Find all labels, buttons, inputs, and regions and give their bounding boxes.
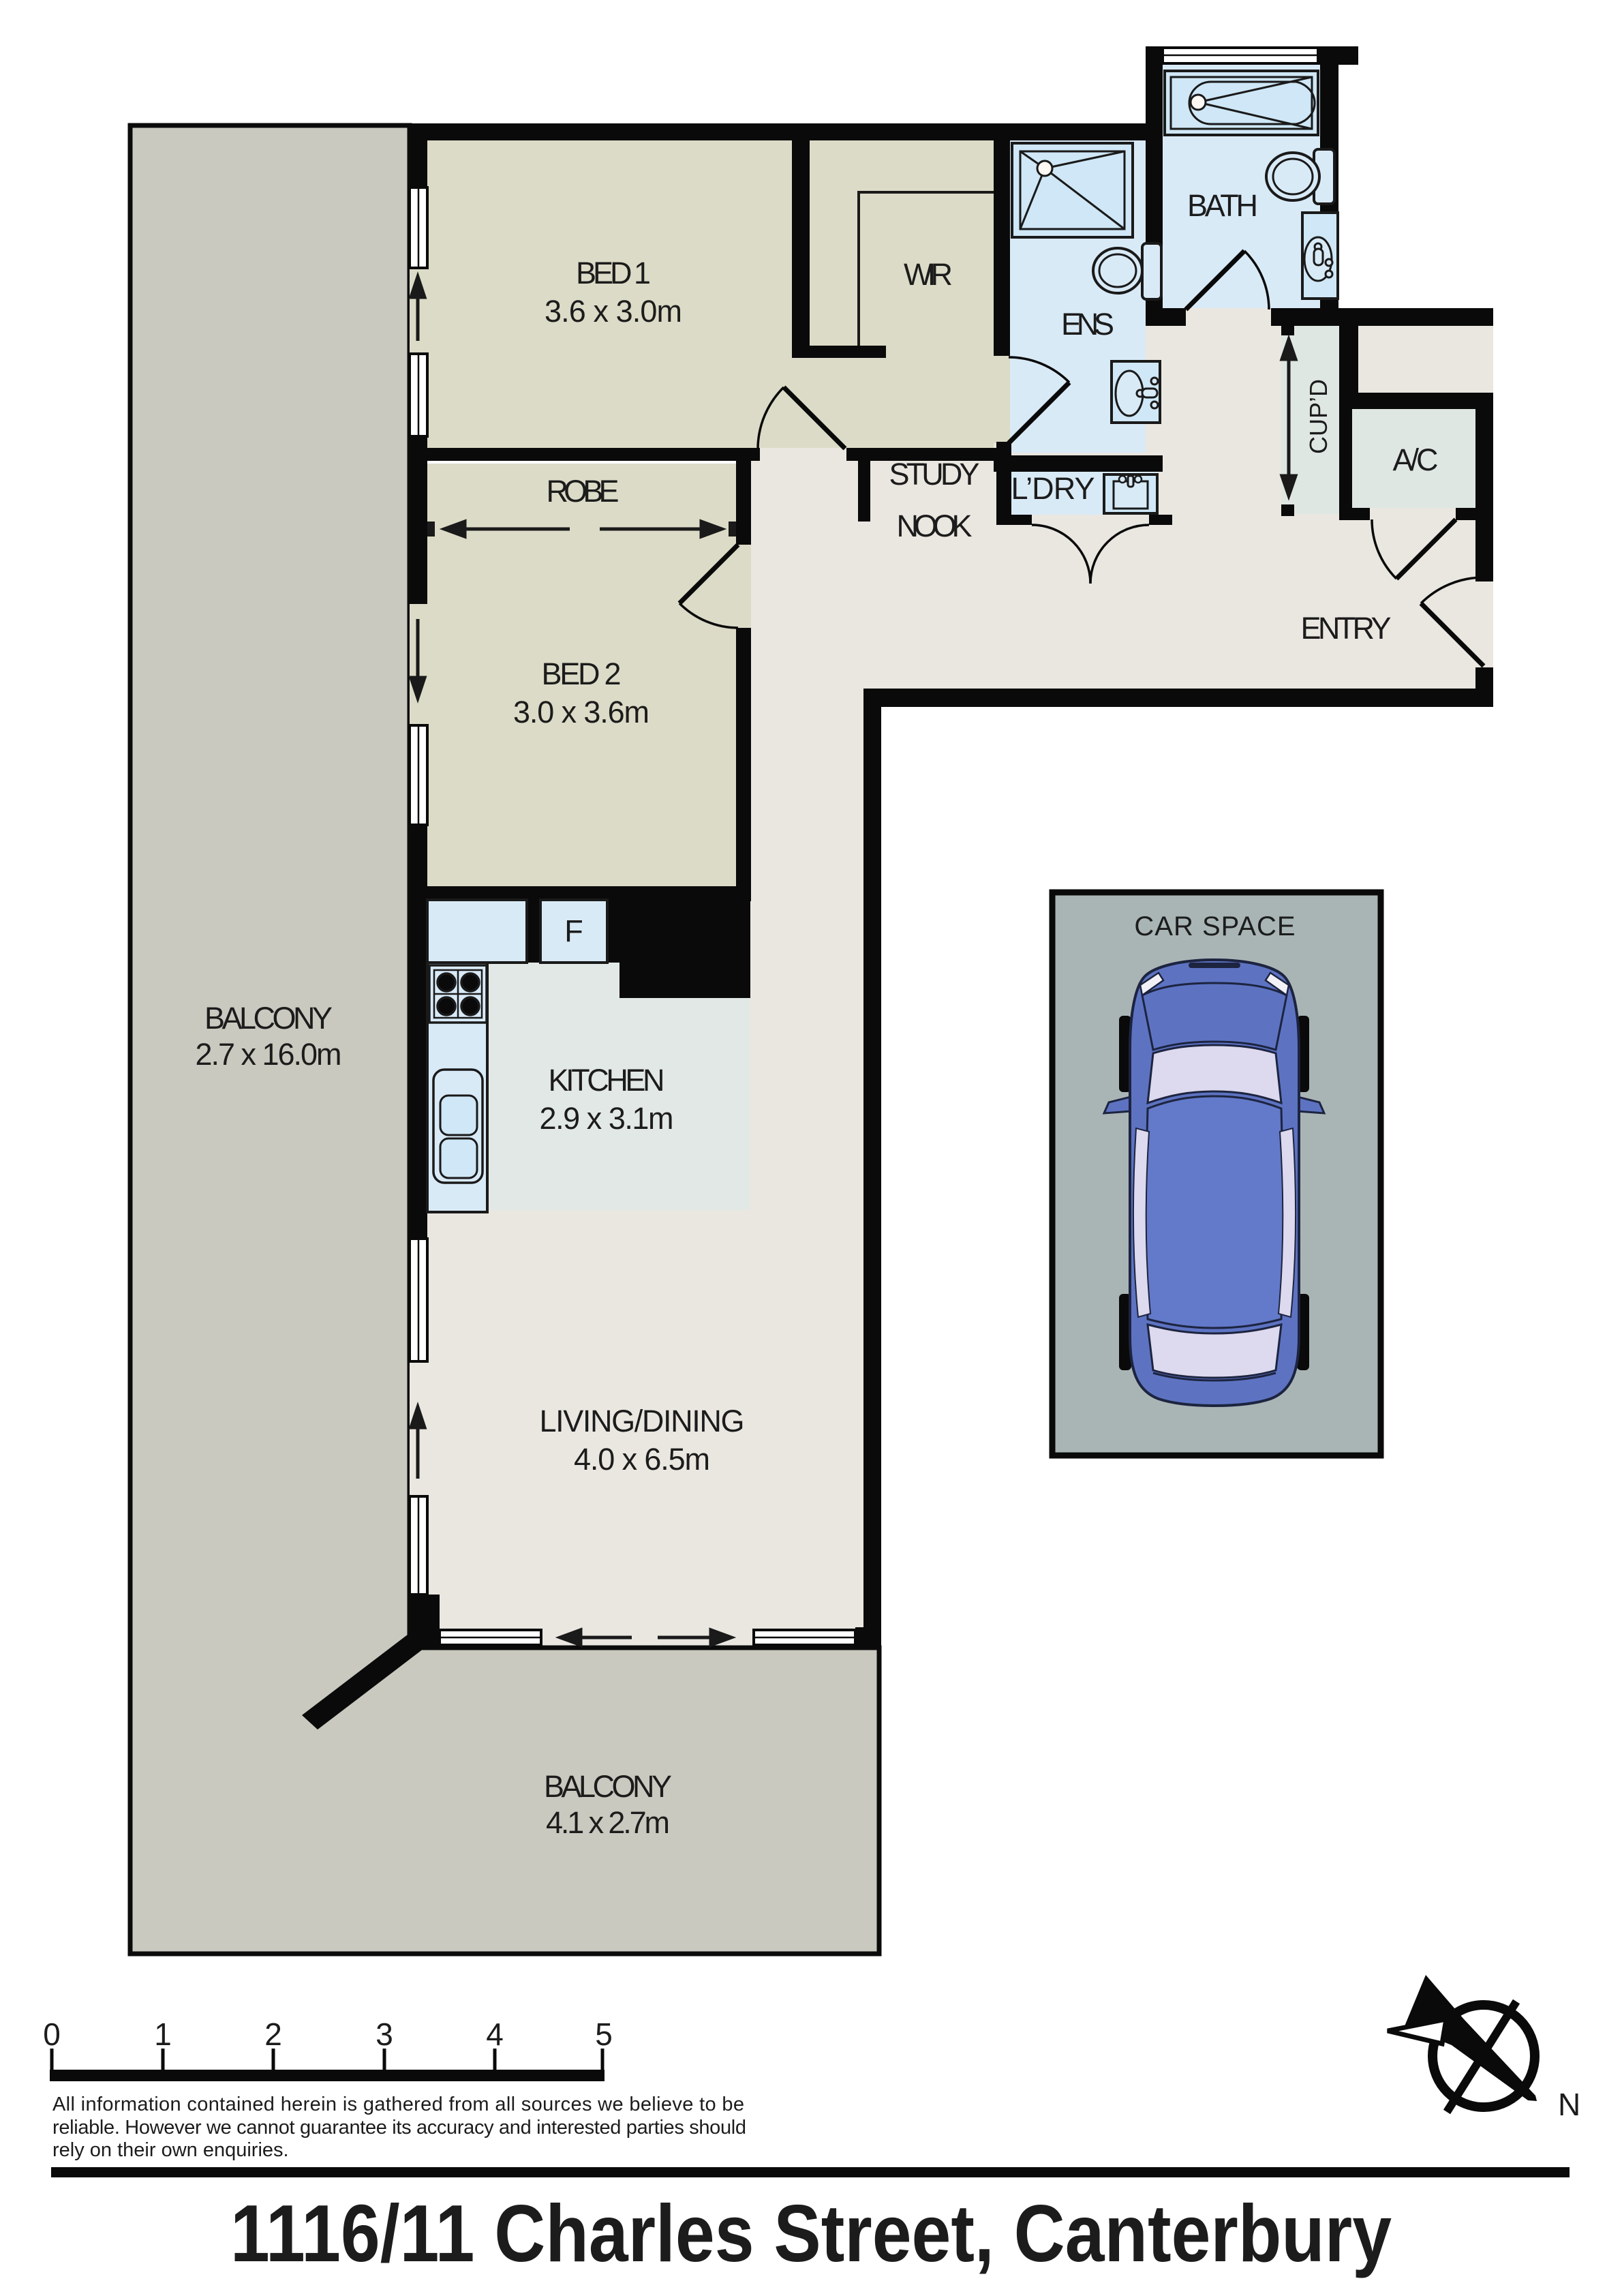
svg-text:5: 5 [595, 2016, 613, 2052]
svg-text:3: 3 [376, 2016, 393, 2052]
svg-text:ENS: ENS [1061, 307, 1114, 342]
svg-text:STUDY: STUDY [889, 457, 980, 492]
svg-text:BALCONY: BALCONY [544, 1769, 672, 1804]
svg-text:LIVING/DINING: LIVING/DINING [540, 1404, 745, 1438]
svg-text:All information contained here: All information contained herein is gath… [52, 2094, 744, 2115]
svg-text:ROBE: ROBE [547, 474, 619, 509]
svg-text:BED 2: BED 2 [542, 656, 622, 691]
svg-text:2: 2 [264, 2016, 282, 2052]
svg-text:rely on their own enquiries.: rely on their own enquiries. [52, 2139, 289, 2161]
svg-text:ENTRY: ENTRY [1301, 611, 1392, 646]
svg-text:1: 1 [154, 2016, 172, 2052]
svg-text:4: 4 [486, 2016, 504, 2052]
svg-text:WIR: WIR [904, 257, 953, 292]
svg-text:4.0 x 6.5m: 4.0 x 6.5m [574, 1442, 710, 1477]
svg-text:3.6 x 3.0m: 3.6 x 3.0m [545, 294, 682, 329]
svg-text:3.0 x 3.6m: 3.0 x 3.6m [513, 695, 649, 729]
svg-text:KITCHEN: KITCHEN [549, 1063, 665, 1098]
svg-text:L’DRY: L’DRY [1011, 471, 1095, 506]
svg-text:2.9 x 3.1m: 2.9 x 3.1m [540, 1101, 674, 1136]
svg-text:0: 0 [43, 2016, 61, 2052]
svg-text:BATH: BATH [1187, 188, 1258, 223]
svg-text:N: N [1558, 2087, 1580, 2122]
svg-text:4.1 x 2.7m: 4.1 x 2.7m [546, 1805, 670, 1840]
svg-text:CAR SPACE: CAR SPACE [1134, 911, 1296, 941]
svg-text:CUP’D: CUP’D [1304, 379, 1332, 454]
svg-text:reliable. However we cannot gu: reliable. However we cannot guarantee it… [52, 2117, 746, 2139]
svg-text:BED 1: BED 1 [576, 256, 651, 290]
svg-text:1116/11 Charles Street, Canter: 1116/11 Charles Street, Canterbury [230, 2188, 1392, 2279]
svg-text:2.7 x 16.0m: 2.7 x 16.0m [196, 1037, 342, 1072]
svg-text:F: F [564, 913, 583, 948]
svg-text:NOOK: NOOK [897, 509, 973, 543]
svg-text:A/C: A/C [1393, 442, 1439, 477]
svg-text:BALCONY: BALCONY [204, 1001, 333, 1036]
